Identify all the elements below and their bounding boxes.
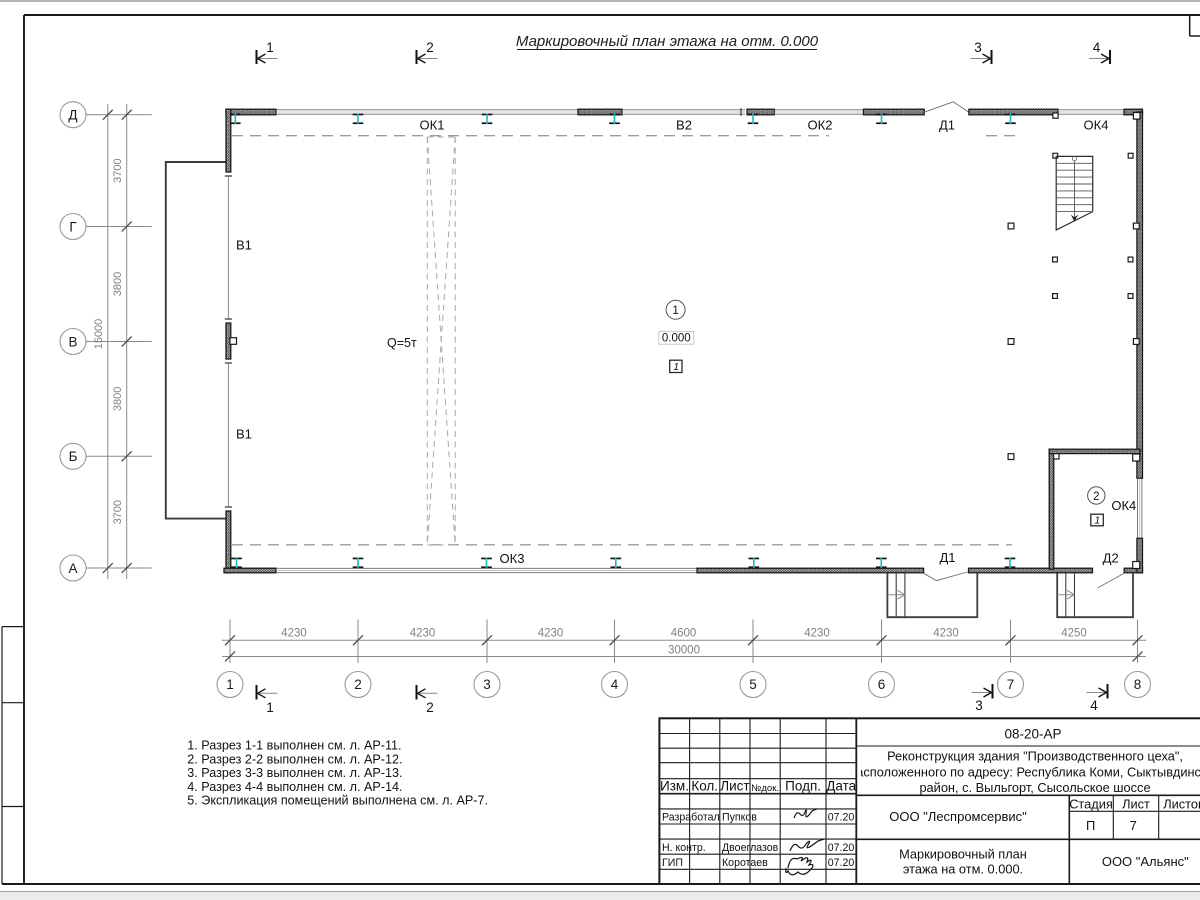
svg-text:Маркировочный план этажа на от: Маркировочный план этажа на отм. 0.000 xyxy=(516,33,819,50)
svg-text:П: П xyxy=(1086,818,1095,833)
svg-text:6: 6 xyxy=(878,677,886,692)
svg-text:1: 1 xyxy=(226,677,234,692)
svg-text:Б: Б xyxy=(69,449,78,464)
svg-text:3700: 3700 xyxy=(112,158,124,182)
svg-text:Листов: Листов xyxy=(1163,796,1200,811)
svg-text:В1: В1 xyxy=(236,238,252,253)
svg-text:Коротаев: Коротаев xyxy=(722,857,768,869)
svg-text:Н. контр.: Н. контр. xyxy=(662,842,706,854)
svg-text:2: 2 xyxy=(1093,491,1099,503)
svg-text:Лист: Лист xyxy=(720,779,749,794)
svg-text:Реконструкция здания "Производ: Реконструкция здания "Производственного … xyxy=(887,749,1183,764)
svg-text:15000: 15000 xyxy=(93,319,105,350)
svg-text:1: 1 xyxy=(1094,515,1100,527)
svg-text:3800: 3800 xyxy=(112,272,124,296)
svg-text:Г: Г xyxy=(69,219,77,234)
svg-text:30000: 30000 xyxy=(668,644,700,656)
svg-text:07.20: 07.20 xyxy=(828,842,855,854)
svg-text:Подп.: Подп. xyxy=(785,779,821,794)
svg-text:1: 1 xyxy=(673,361,679,373)
svg-text:Лист: Лист xyxy=(1122,796,1150,811)
svg-text:А: А xyxy=(68,561,77,576)
svg-text:4230: 4230 xyxy=(410,628,436,640)
svg-text:4600: 4600 xyxy=(671,628,697,640)
svg-text:4: 4 xyxy=(611,677,619,692)
svg-text:ГИП: ГИП xyxy=(662,857,683,869)
svg-text:2. Разрез 2-2 выполнен см. л.: 2. Разрез 2-2 выполнен см. л. АР-12. xyxy=(187,752,402,766)
svg-text:4250: 4250 xyxy=(1061,628,1087,640)
svg-text:2: 2 xyxy=(354,677,362,692)
svg-text:№док.: №док. xyxy=(751,783,779,794)
svg-text:2: 2 xyxy=(426,700,434,715)
svg-text:7: 7 xyxy=(1007,677,1015,692)
svg-text:4230: 4230 xyxy=(804,628,830,640)
svg-text:07.20: 07.20 xyxy=(828,857,855,869)
svg-text:Д2: Д2 xyxy=(1103,551,1119,566)
svg-text:расположенного по адресу: Респ: расположенного по адресу: Республика Ком… xyxy=(849,765,1200,780)
svg-text:этажа на отм. 0.000.: этажа на отм. 0.000. xyxy=(903,862,1023,877)
svg-text:1: 1 xyxy=(266,40,274,55)
svg-text:4: 4 xyxy=(1090,698,1098,713)
svg-text:ОК4: ОК4 xyxy=(1084,118,1109,133)
svg-text:3800: 3800 xyxy=(112,387,124,411)
svg-text:ОК4: ОК4 xyxy=(1111,498,1136,513)
svg-text:4. Разрез 4-4 выполнен см. л.: 4. Разрез 4-4 выполнен см. л. АР-14. xyxy=(187,780,402,794)
svg-text:07.20: 07.20 xyxy=(828,811,855,823)
svg-text:Разработал: Разработал xyxy=(662,811,720,823)
svg-text:ОК3: ОК3 xyxy=(500,551,525,566)
svg-text:ООО "Альянс": ООО "Альянс" xyxy=(1102,854,1189,869)
svg-text:В2: В2 xyxy=(676,118,692,133)
svg-text:7: 7 xyxy=(1130,818,1137,833)
svg-text:Изм.: Изм. xyxy=(660,779,689,794)
svg-text:08-20-АР: 08-20-АР xyxy=(1004,727,1061,742)
svg-text:4230: 4230 xyxy=(933,628,959,640)
svg-text:Стадия: Стадия xyxy=(1069,796,1113,811)
svg-text:район, с. Выльгорт, Сысольское: район, с. Выльгорт, Сысольское шоссе xyxy=(919,780,1150,795)
svg-text:Кол.: Кол. xyxy=(691,779,718,794)
svg-text:Д: Д xyxy=(68,108,77,123)
svg-text:ОК1: ОК1 xyxy=(420,118,445,133)
svg-text:4230: 4230 xyxy=(281,628,307,640)
svg-text:2: 2 xyxy=(426,40,434,55)
svg-text:0.000: 0.000 xyxy=(662,333,691,345)
svg-text:Q=5т: Q=5т xyxy=(387,336,417,350)
svg-text:4230: 4230 xyxy=(538,628,564,640)
svg-text:Дата: Дата xyxy=(826,779,856,794)
svg-text:3: 3 xyxy=(483,677,491,692)
svg-text:Маркировочный план: Маркировочный план xyxy=(899,847,1027,862)
svg-text:В1: В1 xyxy=(236,427,252,442)
svg-text:Двоеглазов: Двоеглазов xyxy=(722,842,779,854)
svg-text:8: 8 xyxy=(1134,677,1142,692)
svg-text:ОК2: ОК2 xyxy=(808,118,833,133)
svg-text:1: 1 xyxy=(672,305,678,317)
svg-text:4: 4 xyxy=(1093,40,1101,55)
svg-text:1: 1 xyxy=(266,700,274,715)
svg-text:5. Экспликация помещений выпол: 5. Экспликация помещений выполнена см. л… xyxy=(187,794,488,808)
svg-text:Д1: Д1 xyxy=(939,118,955,133)
svg-text:Пупков: Пупков xyxy=(722,811,757,823)
svg-text:3700: 3700 xyxy=(112,500,124,524)
svg-text:В: В xyxy=(68,334,77,349)
svg-text:1. Разрез 1-1 выполнен см. л.: 1. Разрез 1-1 выполнен см. л. АР-11. xyxy=(187,739,401,753)
svg-text:3: 3 xyxy=(974,40,982,55)
svg-text:5: 5 xyxy=(749,677,757,692)
svg-text:3: 3 xyxy=(975,698,983,713)
svg-text:3. Разрез 3-3 выполнен см. л.: 3. Разрез 3-3 выполнен см. л. АР-13. xyxy=(187,766,402,780)
svg-text:Д1: Д1 xyxy=(939,550,955,565)
svg-text:ООО "Леспромсервис": ООО "Леспромсервис" xyxy=(889,809,1027,824)
